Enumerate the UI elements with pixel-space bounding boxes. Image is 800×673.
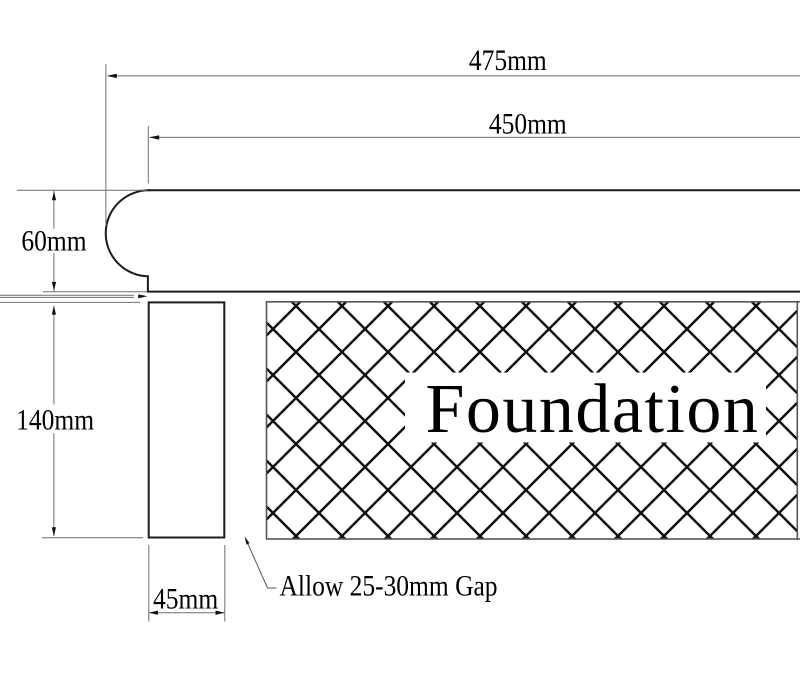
svg-text:140mm: 140mm	[16, 404, 94, 437]
svg-text:Foundation: Foundation	[426, 371, 760, 448]
svg-text:450mm: 450mm	[489, 107, 567, 140]
svg-text:Allow 25-30mm Gap: Allow 25-30mm Gap	[280, 570, 498, 603]
svg-text:475mm: 475mm	[469, 44, 547, 77]
svg-text:60mm: 60mm	[21, 225, 86, 258]
svg-text:45mm: 45mm	[153, 583, 218, 616]
